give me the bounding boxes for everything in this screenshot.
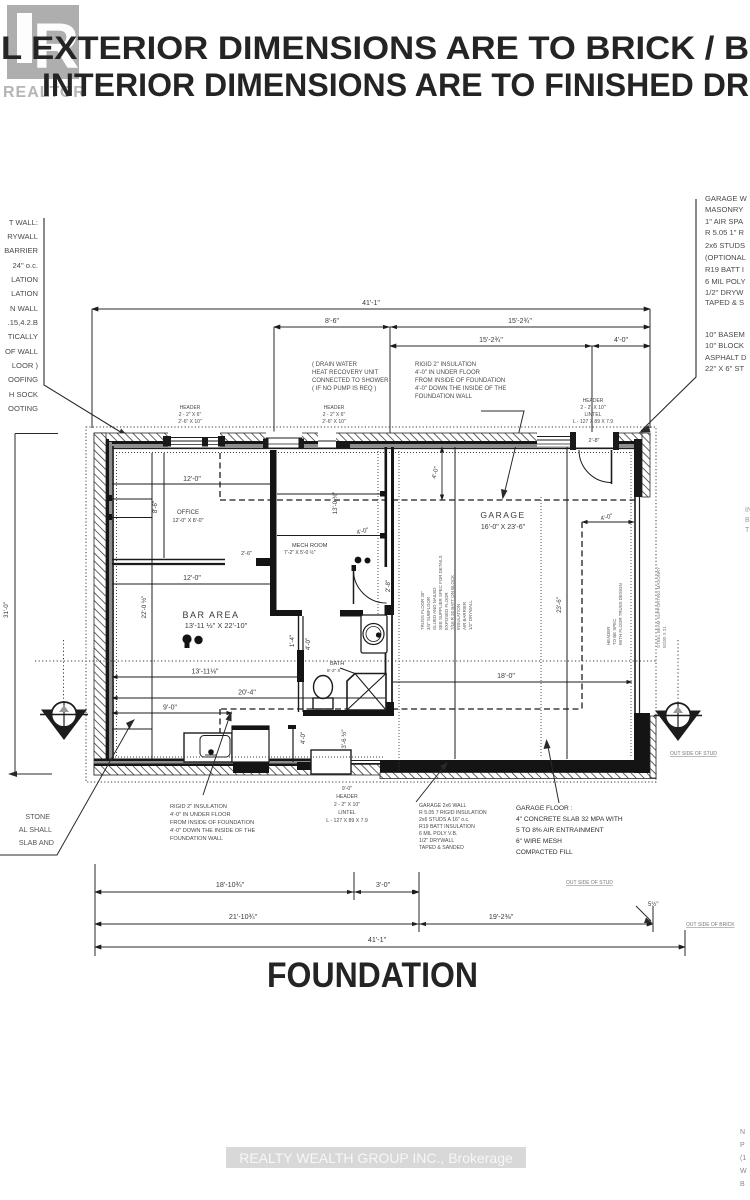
svg-text:HEAT RECOVERY UNIT: HEAT RECOVERY UNIT <box>312 370 379 376</box>
svg-text:H SOCK: H SOCK <box>9 390 38 399</box>
svg-text:2'-6" X 10": 2'-6" X 10" <box>322 419 346 425</box>
svg-text:OOFING: OOFING <box>8 375 38 384</box>
svg-text:2x6 STUDS: 2x6 STUDS <box>705 241 745 250</box>
svg-text:FOUNDATION WALL: FOUNDATION WALL <box>170 836 223 842</box>
svg-text:9'-0": 9'-0" <box>342 786 352 792</box>
svg-text:WITH FLOOR TRUSS DESIGN: WITH FLOOR TRUSS DESIGN <box>618 583 623 645</box>
svg-text:CONNECTED TO SHOWER: CONNECTED TO SHOWER <box>312 378 389 384</box>
svg-text:1/2" DRYWALL: 1/2" DRYWALL <box>468 600 473 630</box>
svg-text:SLAB AND: SLAB AND <box>19 838 54 847</box>
svg-text:OUT SIDE OF BRICK: OUT SIDE OF BRICK <box>686 922 735 928</box>
svg-text:1'-4": 1'-4" <box>289 635 296 647</box>
svg-text:15'-2¾": 15'-2¾" <box>479 337 503 344</box>
svg-text:21'-10¾": 21'-10¾" <box>229 912 258 921</box>
svg-text:INTERIOR DIMENSIONS ARE TO FIN: INTERIOR DIMENSIONS ARE TO FINISHED DR <box>42 67 749 103</box>
svg-text:ASPHALT D: ASPHALT D <box>705 353 747 362</box>
svg-text:R19 BATT INSULATION: R19 BATT INSULATION <box>419 824 475 830</box>
svg-text:(OPTIONAL: (OPTIONAL <box>705 253 746 262</box>
svg-text:8'-6": 8'-6" <box>325 318 339 325</box>
svg-text:STEEL BEAM SUPPORTING MASONRY: STEEL BEAM SUPPORTING MASONRY <box>656 567 661 648</box>
svg-text:AIR BARRIER: AIR BARRIER <box>462 602 467 630</box>
svg-text:HEADER: HEADER <box>606 627 611 645</box>
svg-text:MASONRY: MASONRY <box>705 205 743 214</box>
svg-text:4'-0": 4'-0" <box>356 527 370 537</box>
svg-text:18'-10¾": 18'-10¾" <box>216 880 245 889</box>
svg-text:B: B <box>745 517 750 524</box>
svg-text:LATION: LATION <box>11 289 38 298</box>
svg-text:R19 BATT I: R19 BATT I <box>705 265 744 274</box>
svg-text:16'-0" X 23'-6": 16'-0" X 23'-6" <box>481 524 526 531</box>
svg-text:AL SHALL: AL SHALL <box>19 825 52 834</box>
svg-text:L EXTERIOR DIMENSIONS ARE TO B: L EXTERIOR DIMENSIONS ARE TO BRICK / B <box>1 30 749 66</box>
svg-text:5 TO 8% AIR ENTRAINMENT: 5 TO 8% AIR ENTRAINMENT <box>516 827 604 834</box>
svg-text:( IF NO PUMP IS REQ ): ( IF NO PUMP IS REQ ) <box>312 386 376 392</box>
svg-text:.15,4.2.B: .15,4.2.B <box>8 318 38 327</box>
svg-text:FOUNDATION WALL: FOUNDATION WALL <box>415 394 473 400</box>
svg-text:13'-11⅛": 13'-11⅛" <box>191 669 219 676</box>
svg-text:EXPOSED FLOOR: EXPOSED FLOOR <box>444 592 449 630</box>
svg-text:HEADER: HEADER <box>324 405 345 411</box>
svg-text:1" AIR SPA: 1" AIR SPA <box>705 217 744 226</box>
svg-text:4'-0" IN UNDER FLOOR: 4'-0" IN UNDER FLOOR <box>170 812 231 818</box>
svg-text:OUT SIDE OF STUD: OUT SIDE OF STUD <box>566 880 613 886</box>
svg-text:6 MIL POLY: 6 MIL POLY <box>705 277 746 286</box>
svg-text:REALTY WEALTH GROUP INC., Brok: REALTY WEALTH GROUP INC., Brokerage <box>239 1150 513 1166</box>
svg-text:R 5.05 1" R: R 5.05 1" R <box>705 228 745 237</box>
svg-text:4'-0" IN UNDER FLOOR: 4'-0" IN UNDER FLOOR <box>415 370 481 376</box>
svg-text:(1: (1 <box>740 1155 746 1162</box>
svg-text:LOOR ): LOOR ) <box>12 361 39 370</box>
svg-text:3'-0": 3'-0" <box>376 880 391 889</box>
svg-text:BATH: BATH <box>330 661 344 667</box>
svg-text:20'-4": 20'-4" <box>238 690 256 697</box>
svg-text:BAR AREA: BAR AREA <box>182 610 239 620</box>
svg-text:( DRAIN WATER: ( DRAIN WATER <box>312 362 358 368</box>
svg-text:TRUSS FLOOR 20": TRUSS FLOOR 20" <box>420 591 425 630</box>
svg-text:8'-2" X: 8'-2" X <box>327 668 341 673</box>
svg-text:BARRIER: BARRIER <box>4 246 38 255</box>
svg-text:9'-0": 9'-0" <box>163 705 177 712</box>
svg-text:SEE SUPPLIER SPEC FOR DETAILS: SEE SUPPLIER SPEC FOR DETAILS <box>438 555 443 630</box>
svg-text:L - 127 X 89 X 7.9: L - 127 X 89 X 7.9 <box>326 818 368 824</box>
svg-text:10" BASEM: 10" BASEM <box>705 330 745 339</box>
svg-text:4'-0" DOWN THE INSIDE OF THE: 4'-0" DOWN THE INSIDE OF THE <box>170 828 255 834</box>
svg-text:7/16 R 20 BATT ON BLOCK: 7/16 R 20 BATT ON BLOCK <box>450 575 455 630</box>
svg-text:GARAGE W: GARAGE W <box>705 194 748 203</box>
svg-text:B: B <box>740 1181 745 1188</box>
svg-text:19'-2⅜": 19'-2⅜" <box>489 912 514 921</box>
svg-text:GARAGE: GARAGE <box>480 510 525 520</box>
svg-text:4'-0": 4'-0" <box>431 466 441 480</box>
svg-text:15'-2¾": 15'-2¾" <box>508 318 532 325</box>
svg-text:TAPED & SANDED: TAPED & SANDED <box>419 845 464 851</box>
svg-text:RIGID 2" INSULATION: RIGID 2" INSULATION <box>170 804 227 810</box>
svg-text:GARAGE 2x6 WALL: GARAGE 2x6 WALL <box>419 803 466 809</box>
svg-text:4'-0": 4'-0" <box>614 337 628 344</box>
svg-text:3'-6 ½": 3'-6 ½" <box>341 729 348 748</box>
svg-text:5½": 5½" <box>648 901 658 908</box>
svg-text:12'-0": 12'-0" <box>183 575 201 582</box>
svg-text:FROM INSIDE OF FOUNDATION: FROM INSIDE OF FOUNDATION <box>170 820 254 826</box>
svg-text:12'-0" X 8'-0": 12'-0" X 8'-0" <box>172 518 203 524</box>
svg-text:R 5.05 7 RIGID INSULATION: R 5.05 7 RIGID INSULATION <box>419 810 487 816</box>
svg-text:HEADER: HEADER <box>336 794 358 800</box>
svg-text:3/4" SUBFLOOR: 3/4" SUBFLOOR <box>426 597 431 630</box>
svg-text:T: T <box>745 527 750 534</box>
svg-text:12'-0": 12'-0" <box>183 476 201 483</box>
svg-text:2'-8": 2'-8" <box>385 580 392 592</box>
svg-text:1/2" DRYWALL: 1/2" DRYWALL <box>419 838 454 844</box>
svg-text:24" o.c.: 24" o.c. <box>13 261 39 270</box>
svg-text:13'-0 ⅜": 13'-0 ⅜" <box>332 492 339 515</box>
svg-text:N WALL: N WALL <box>10 304 38 313</box>
svg-text:13'-11 ½" X 22'-10": 13'-11 ½" X 22'-10" <box>185 621 248 630</box>
svg-text:31'-0": 31'-0" <box>3 602 10 618</box>
svg-text:6" WIRE MESH: 6" WIRE MESH <box>516 838 562 845</box>
svg-text:2 - 2" X 10": 2 - 2" X 10" <box>580 405 605 411</box>
svg-text:4'-0": 4'-0" <box>600 513 614 523</box>
svg-text:MECH ROOM: MECH ROOM <box>292 543 328 549</box>
svg-text:COMPACTED FILL: COMPACTED FILL <box>516 849 573 856</box>
svg-text:41'-1": 41'-1" <box>368 935 387 944</box>
svg-text:INSULATION: INSULATION <box>456 604 461 630</box>
svg-text:RIGID 2" INSULATION: RIGID 2" INSULATION <box>415 362 476 368</box>
svg-text:N: N <box>740 1129 745 1136</box>
svg-text:OOTING: OOTING <box>8 404 38 413</box>
svg-text:18'-0": 18'-0" <box>497 673 515 680</box>
svg-text:22'-0 ½": 22'-0 ½" <box>141 596 148 619</box>
svg-text:OFFICE: OFFICE <box>177 510 199 516</box>
svg-text:P: P <box>740 1142 745 1149</box>
svg-text:2x6 STUDS A 16" o.c.: 2x6 STUDS A 16" o.c. <box>419 817 470 823</box>
svg-text:2 - 2" X 10": 2 - 2" X 10" <box>334 802 360 808</box>
svg-text:STONE: STONE <box>25 812 50 821</box>
svg-text:GLUED AND NAILED: GLUED AND NAILED <box>432 588 437 630</box>
svg-text:4'-0" DOWN THE INSIDE OF THE: 4'-0" DOWN THE INSIDE OF THE <box>415 386 506 392</box>
svg-text:GARAGE FLOOR :: GARAGE FLOOR : <box>516 805 573 812</box>
svg-text:HEADER: HEADER <box>180 405 201 411</box>
svg-text:LINTEL: LINTEL <box>338 810 356 816</box>
svg-text:FOUNDATION: FOUNDATION <box>267 956 478 995</box>
svg-text:L - 127 X 89 X 7.9: L - 127 X 89 X 7.9 <box>573 419 613 425</box>
svg-text:W200 X 21: W200 X 21 <box>662 626 667 648</box>
svg-text:OF WALL: OF WALL <box>5 347 38 356</box>
svg-text:1/2" DRYW: 1/2" DRYW <box>705 288 744 297</box>
svg-text:6 MIL POLY V.B.: 6 MIL POLY V.B. <box>419 831 457 837</box>
svg-text:2'-8": 2'-8" <box>589 438 600 444</box>
svg-text:22" X 6" ST: 22" X 6" ST <box>705 364 745 373</box>
svg-text:2'-6": 2'-6" <box>241 551 252 557</box>
svg-text:2 - 2" X 6": 2 - 2" X 6" <box>179 412 202 418</box>
svg-text:7'-2" X 5'-0 ½": 7'-2" X 5'-0 ½" <box>284 549 316 556</box>
svg-text:23'-6": 23'-6" <box>556 597 563 613</box>
svg-text:2 - 2" X 6": 2 - 2" X 6" <box>323 412 346 418</box>
svg-text:41'-1": 41'-1" <box>362 300 380 307</box>
svg-text:TO BE SPEC: TO BE SPEC <box>612 619 617 645</box>
svg-text:TICALLY: TICALLY <box>8 332 38 341</box>
svg-text:LINTEL: LINTEL <box>585 412 602 418</box>
svg-text:LATION: LATION <box>11 275 38 284</box>
svg-text:4'-0": 4'-0" <box>305 638 312 650</box>
svg-text:IN: IN <box>745 507 750 514</box>
svg-text:OUT SIDE OF STUD: OUT SIDE OF STUD <box>670 751 717 757</box>
svg-text:RYWALL: RYWALL <box>7 232 38 241</box>
svg-text:8'-6": 8'-6" <box>152 501 159 513</box>
svg-text:FROM INSIDE OF FOUNDATION: FROM INSIDE OF FOUNDATION <box>415 378 505 384</box>
svg-text:W: W <box>740 1168 747 1175</box>
svg-text:2'-6" X 10": 2'-6" X 10" <box>178 419 202 425</box>
svg-text:TAPED & S: TAPED & S <box>705 298 744 307</box>
svg-text:4" CONCRETE SLAB 32 MPA WITH: 4" CONCRETE SLAB 32 MPA WITH <box>516 816 623 823</box>
svg-text:4'-0": 4'-0" <box>300 732 307 744</box>
svg-text:T WALL:: T WALL: <box>9 218 38 227</box>
svg-text:10" BLOCK: 10" BLOCK <box>705 341 744 350</box>
svg-text:HEADER: HEADER <box>583 398 604 404</box>
